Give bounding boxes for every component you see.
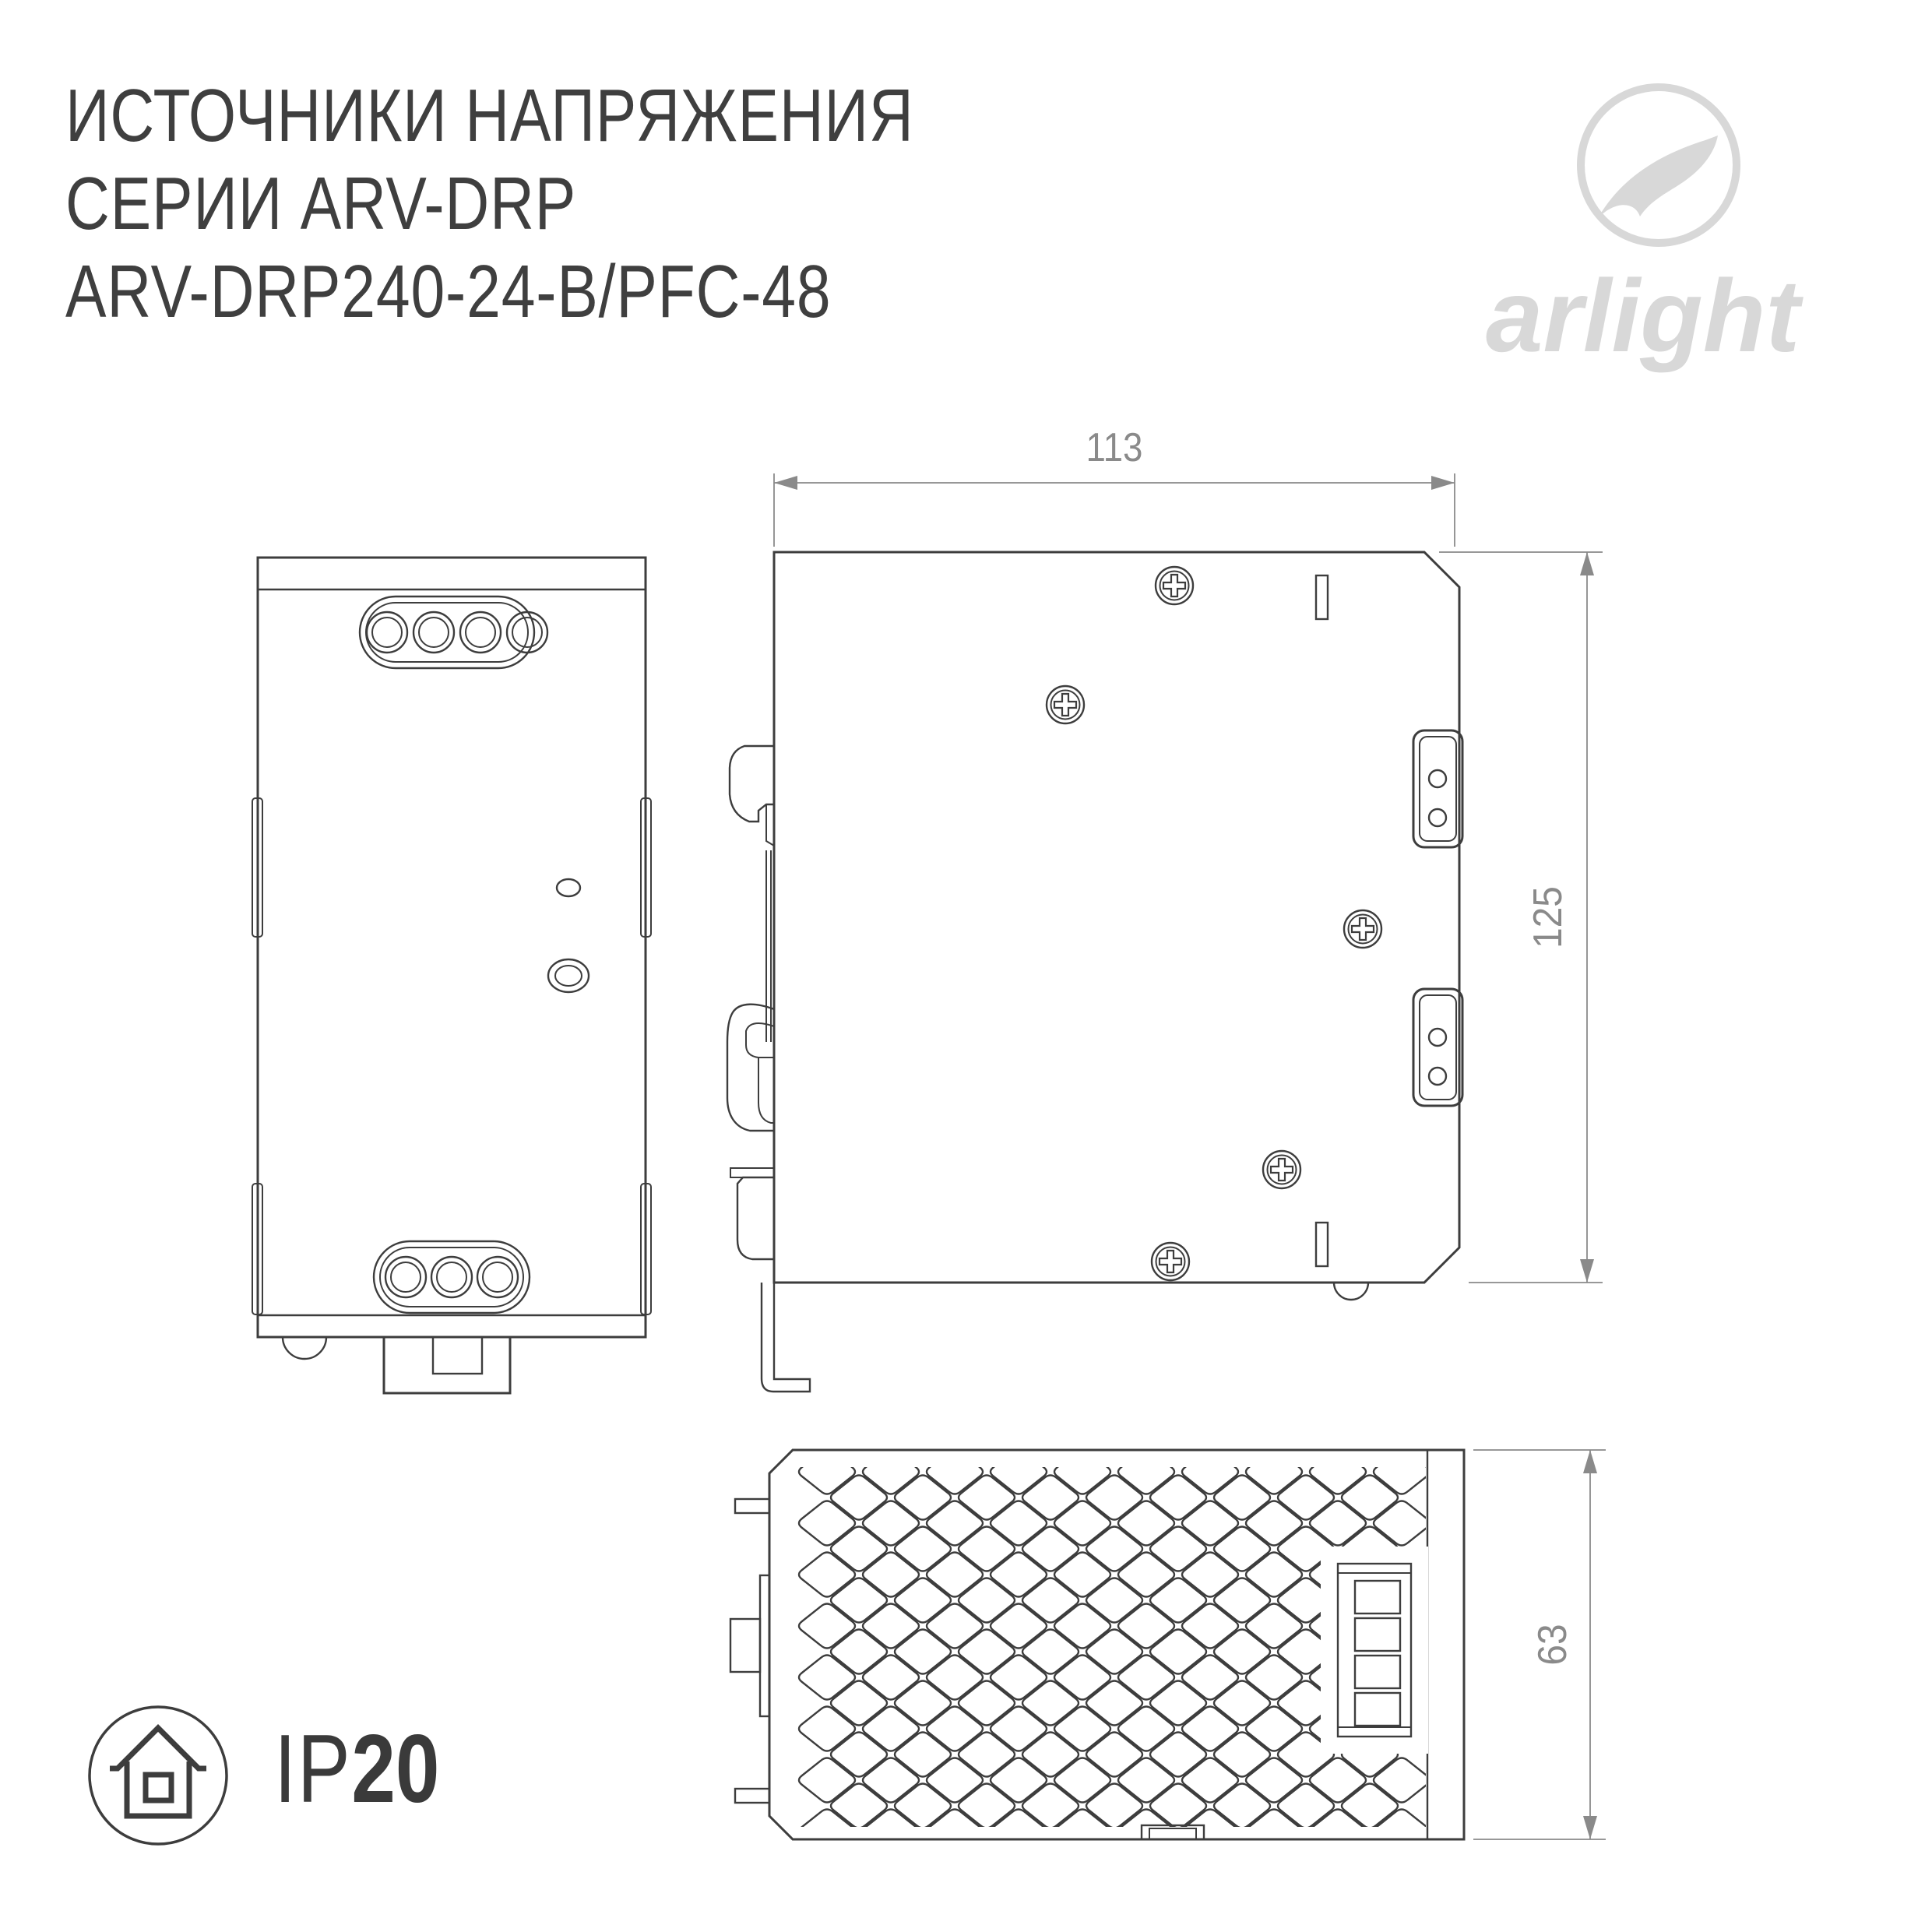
ip-rating-prefix: IP [274,1716,351,1823]
phillips-screw-icon [1047,686,1084,723]
led-indicator [557,879,580,896]
front-bottom-connector [374,1241,530,1313]
ip-rating-badge: IP20 [274,1718,439,1821]
bottom-view-drawing [730,1450,1464,1854]
mounting-tab [1413,989,1462,1106]
dimension-depth-label: 63 [1529,1587,1576,1701]
phillips-screw-icon [1152,1243,1189,1280]
terminal-block [1321,1547,1428,1754]
ip-rating-value: 20 [351,1716,439,1823]
phillips-screw-icon [1156,567,1193,604]
dimension-height-label: 125 [1525,860,1571,974]
side-view-drawing [727,552,1462,1392]
datasheet-page: ИСТОЧНИКИ НАПРЯЖЕНИЯ СЕРИИ ARV-DRP ARV-D… [0,0,1932,1932]
house-in-circle-icon [90,1707,227,1844]
technical-drawing [0,0,1932,1932]
mounting-tab [1413,730,1462,847]
adjust-trimmer [548,959,589,992]
dimension-width-label: 113 [1060,424,1170,471]
front-view-drawing [252,558,651,1393]
phillips-screw-icon [1263,1151,1300,1188]
din-rail-clip [727,746,810,1392]
front-top-connector [360,596,547,668]
phillips-screw-icon [1344,910,1381,948]
